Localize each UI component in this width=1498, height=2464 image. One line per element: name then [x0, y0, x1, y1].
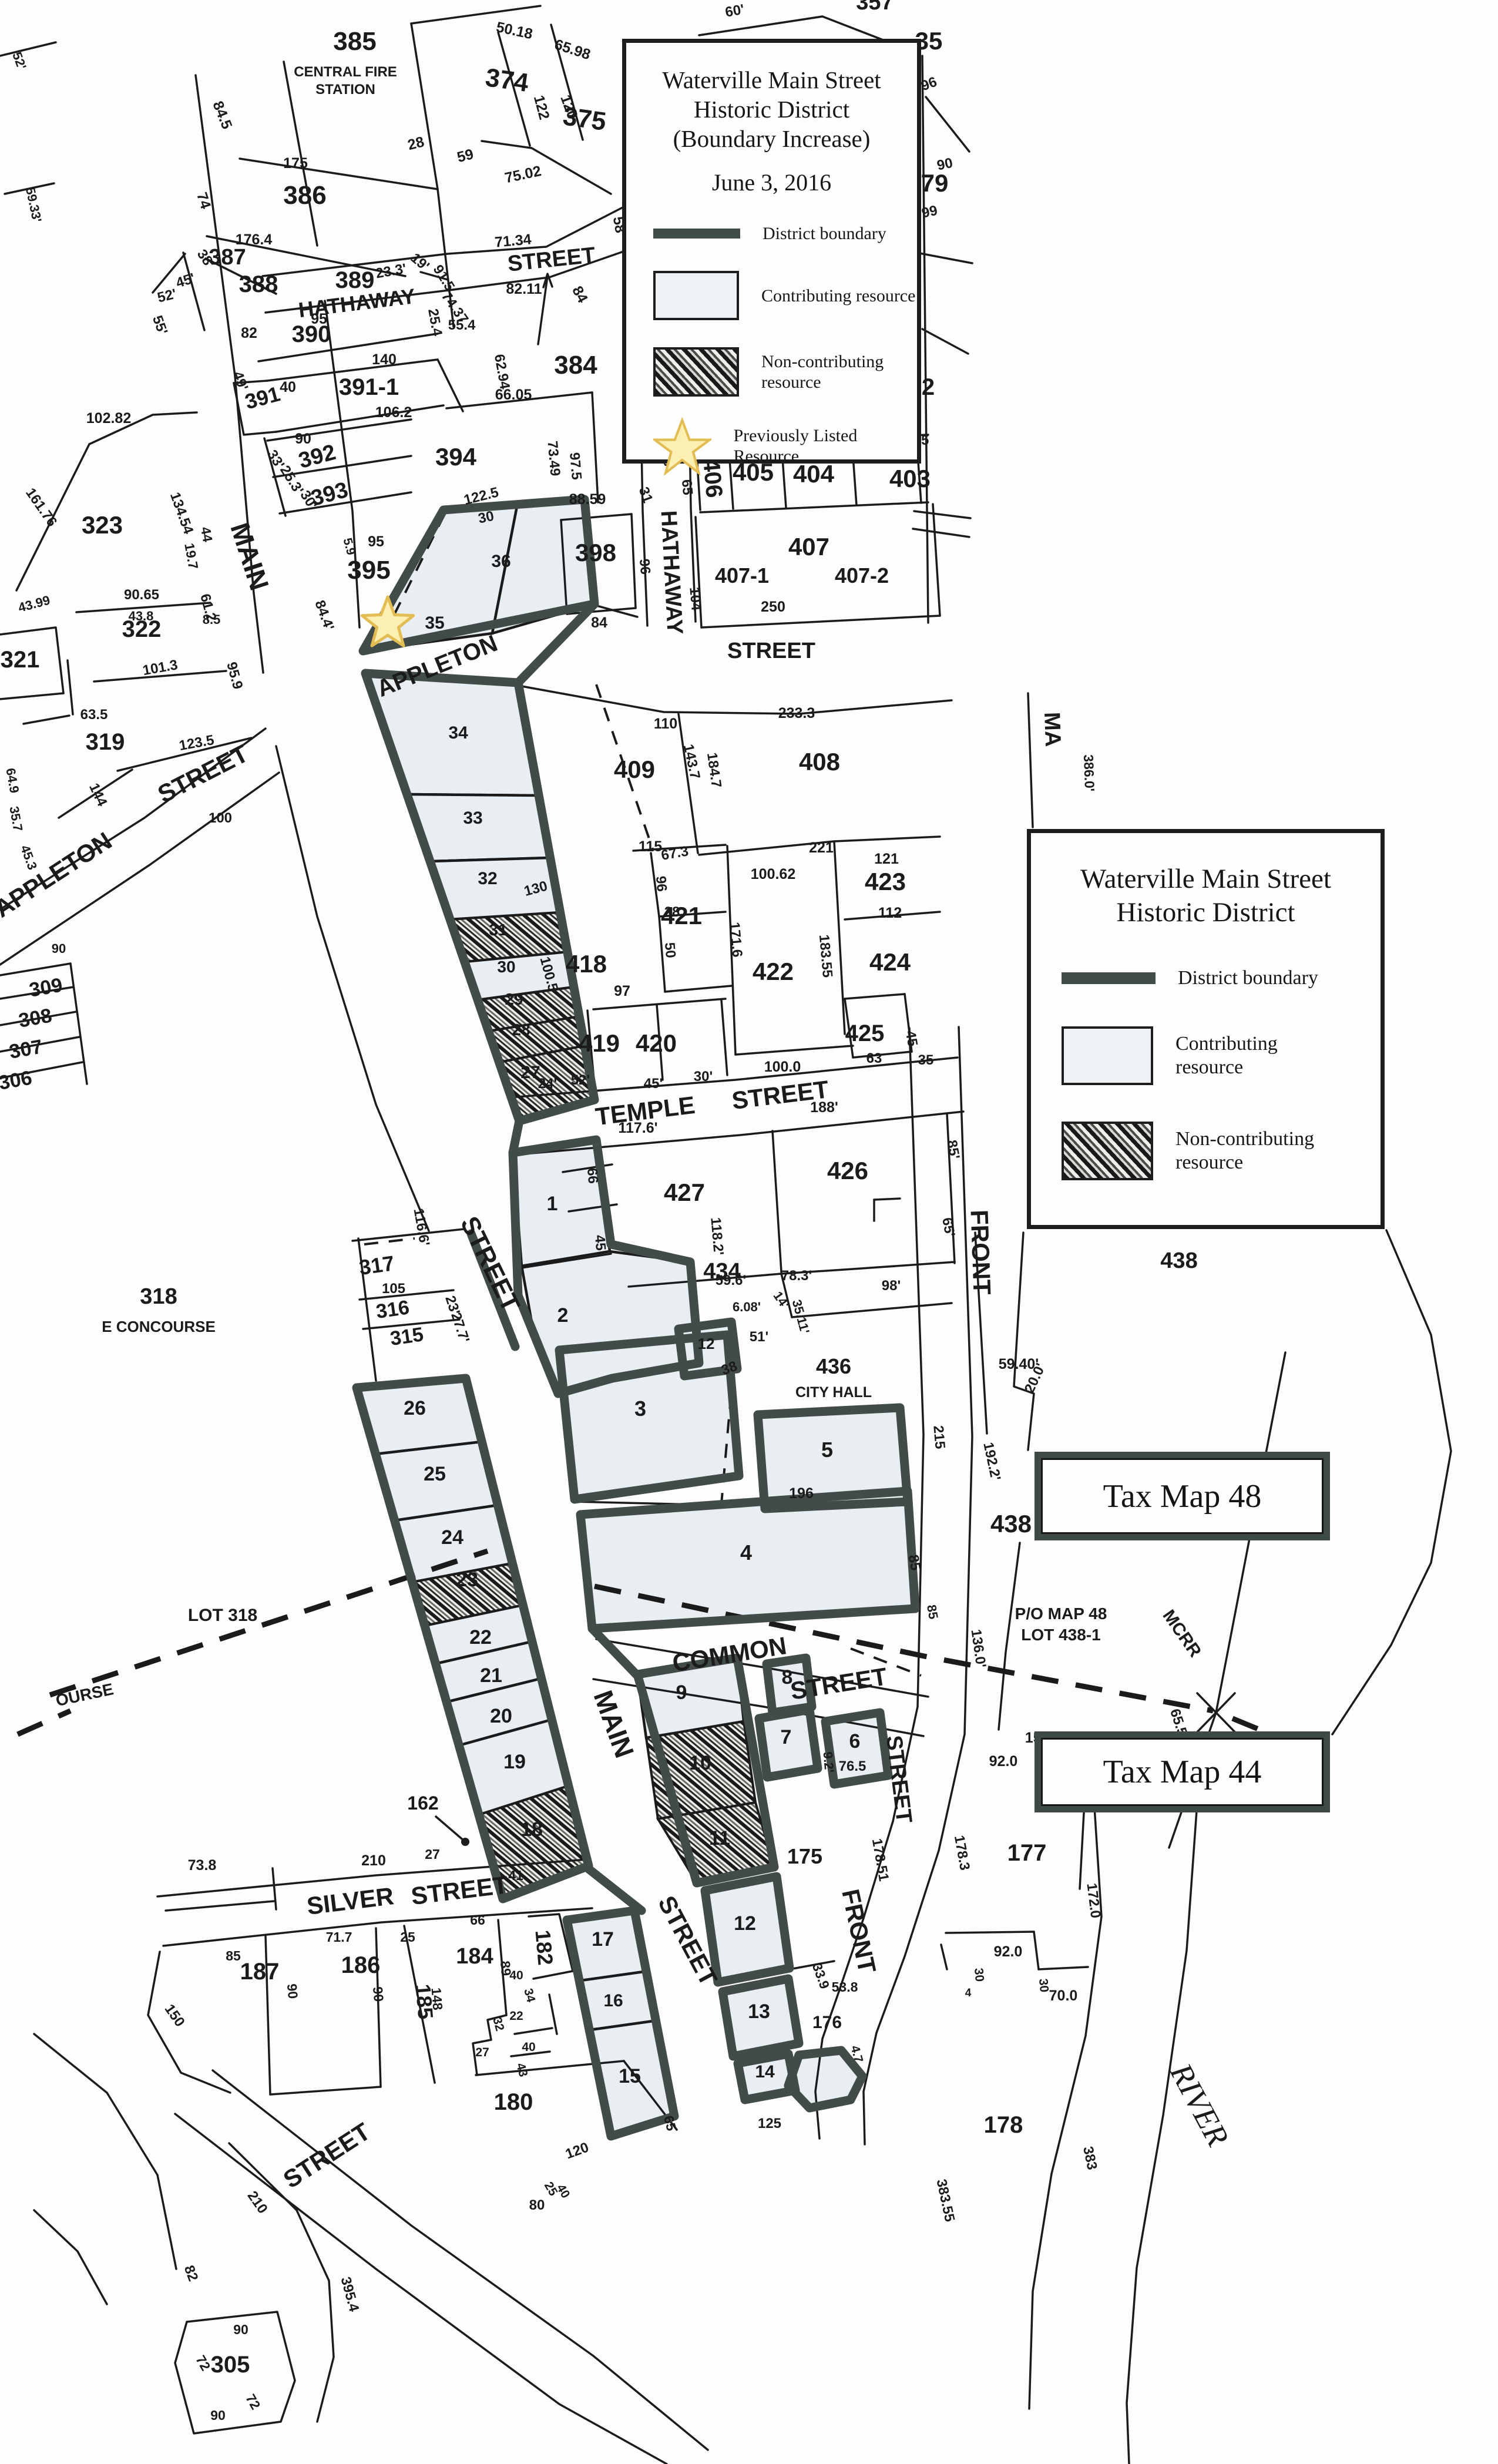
map-label: 178: [984, 2112, 1023, 2138]
map-label: 85': [943, 1139, 962, 1160]
map-label: 184: [456, 1944, 493, 1969]
map-label: 11: [709, 1827, 730, 1849]
map-label: 66: [584, 1167, 601, 1184]
parcel-line: [34, 2034, 176, 2269]
map-label: 85: [905, 1553, 923, 1572]
map-label: 175: [283, 155, 308, 172]
map-label: 316: [375, 1296, 411, 1323]
map-label: 305: [211, 2352, 250, 2378]
map-label: 45: [902, 1029, 921, 1048]
map-label: 187: [240, 1959, 280, 1985]
map-label: 161.76: [22, 485, 60, 530]
map-label: 52': [571, 1072, 590, 1088]
parcel-line: [148, 1952, 230, 2093]
map-label: 22: [509, 2009, 523, 2023]
map-label: 15: [619, 2065, 641, 2087]
map-label: 317: [358, 1251, 396, 1280]
parcel-line: [914, 511, 970, 518]
parcel-line: [522, 686, 952, 714]
map-label: 55.4: [448, 317, 476, 333]
legend-historic-district: Waterville Main Street Historic District…: [1027, 829, 1385, 1229]
contributing-lot: [559, 1335, 739, 1499]
map-label: 19': [408, 250, 432, 274]
parcel-line: [593, 999, 726, 1009]
map-label: 12: [734, 1912, 756, 1935]
map-label: 59.6': [716, 1273, 746, 1288]
map-label: 21: [480, 1664, 502, 1687]
map-label: 192.2': [980, 1441, 1003, 1482]
map-label: 27: [475, 2046, 489, 2059]
map-label: 62.94: [491, 353, 513, 391]
map-label: 33.9: [810, 1961, 833, 1991]
map-label: 82.11: [506, 281, 542, 297]
parcel-line: [913, 529, 969, 537]
map-label: 27: [520, 1063, 540, 1082]
map-label: 196: [789, 1485, 814, 1502]
map-label: 175: [787, 1844, 822, 1868]
legend-item-non-contributing: Non-contributing resource: [1062, 1122, 1381, 1180]
map-label: 80: [529, 2197, 545, 2213]
map-label: 36: [491, 552, 510, 571]
parcel-line: [1028, 693, 1033, 827]
map-label: 215: [930, 1425, 948, 1449]
map-label: 386: [283, 181, 326, 210]
map-label: 25: [424, 1463, 446, 1485]
parcel-line: [352, 1229, 464, 1241]
map-label: 395: [347, 556, 390, 585]
map-label: 82: [181, 2263, 201, 2283]
map-label: 96: [636, 558, 653, 575]
map-label: 63: [866, 1050, 882, 1066]
map-label: 423: [865, 868, 906, 895]
legend-title: Waterville Main Street Historic District…: [626, 65, 917, 153]
map-label: CITY HALL: [795, 1384, 872, 1401]
parcel-line: [482, 141, 611, 194]
map-label: 51': [750, 1329, 768, 1345]
map-label: 17: [592, 1928, 614, 1951]
parcel-line: [701, 616, 940, 627]
map-label: 398: [575, 539, 616, 566]
map-label: 90: [210, 2408, 226, 2423]
map-label: 150: [162, 2002, 188, 2030]
map-label: 63.5: [80, 707, 108, 723]
map-label: STREET: [881, 1734, 916, 1825]
map-label: 19.7: [182, 542, 201, 570]
parcel-line: [515, 2028, 552, 2034]
legend-item-non-contributing: Non-contributing resource: [653, 347, 917, 397]
district-boundary: [586, 1867, 641, 1911]
map-label: 391-1: [339, 374, 399, 400]
parcel-line: [0, 42, 56, 56]
map-label: 12: [698, 1335, 715, 1352]
map-label: 422: [753, 958, 794, 985]
map-label: 31: [489, 921, 507, 939]
river-label: RIVER: [1163, 2057, 1236, 2151]
map-label: 35: [425, 613, 444, 633]
map-label: STREET: [409, 1871, 510, 1910]
map-label: 178.3: [951, 1834, 973, 1872]
map-label: 117.6': [618, 1120, 657, 1136]
map-label: 23.3': [375, 261, 408, 282]
parcel-line: [922, 56, 928, 623]
map-label: 374: [483, 63, 530, 98]
parcel-line: [436, 1817, 465, 1842]
map-label: 9.2': [820, 1751, 837, 1773]
parcel-line: [34, 2210, 107, 2304]
map-label: 85: [924, 1603, 941, 1620]
map-label: 78.3': [781, 1268, 812, 1284]
map-label: 184.7: [704, 751, 724, 788]
map-label: 409: [614, 756, 655, 783]
map-label: 52': [156, 286, 178, 306]
map-label: 318: [140, 1284, 177, 1309]
parcel-line: [696, 517, 701, 627]
parcel-line: [700, 502, 928, 512]
map-label: 407-2: [835, 563, 889, 588]
map-label: 24: [441, 1526, 463, 1549]
map-label: 110: [654, 716, 677, 732]
contributing-swatch: [653, 271, 739, 320]
tax-map-48-box: Tax Map 48: [1035, 1452, 1330, 1540]
map-label: 50: [661, 942, 679, 959]
map-label: 19: [503, 1751, 526, 1773]
map-label: 148: [428, 1987, 445, 2011]
map-label: 418: [566, 950, 607, 978]
map-label: 134.54: [167, 490, 197, 536]
map-label: 438: [990, 1510, 1032, 1538]
map-label: HATHAWAY: [656, 510, 687, 635]
map-label: 23: [456, 1569, 478, 1591]
map-label: 65': [939, 1216, 958, 1238]
map-label: 29: [505, 990, 523, 1008]
parcel-line: [411, 24, 438, 189]
map-label: 30': [694, 1069, 713, 1085]
map-label: 25: [400, 1929, 415, 1945]
legend-boundary-increase: Waterville Main Street Historic District…: [622, 39, 921, 464]
map-label: STATION: [315, 82, 375, 98]
map-label: 28: [512, 1020, 530, 1039]
map-label: 90: [936, 155, 955, 174]
map-label: 44: [198, 526, 216, 543]
map-label: 97: [614, 983, 630, 999]
map-label: 233.3: [778, 705, 815, 721]
tax-map-48-label: Tax Map 48: [1041, 1458, 1324, 1534]
parcel-line: [926, 97, 969, 152]
map-label: 105: [382, 1281, 405, 1297]
parcel-line: [270, 2087, 381, 2094]
map-label: 95: [368, 533, 384, 550]
map-label: LOT 438-1: [1021, 1626, 1100, 1644]
map-label: 100.62: [751, 866, 795, 882]
parcel-line: [721, 1000, 727, 1075]
map-label: 22: [469, 1626, 492, 1649]
map-label: 5: [821, 1438, 833, 1462]
map-label: 75.02: [503, 163, 543, 186]
map-label: 33: [463, 808, 482, 828]
parcel-line: [1014, 1233, 1034, 1450]
map-label: 384: [554, 351, 597, 380]
map-label: MAIN: [588, 1686, 640, 1761]
map-label: 59.33': [23, 186, 45, 223]
map-label: 394: [435, 443, 477, 471]
map-label: 426: [827, 1157, 868, 1184]
map-label: 34: [521, 1987, 538, 2004]
non-contributing-swatch: [1062, 1122, 1153, 1180]
parcel-line: [1127, 1786, 1198, 2464]
map-label: 73.49: [544, 440, 563, 476]
tax-map-44-box: Tax Map 44: [1035, 1731, 1330, 1812]
map-label: 221: [809, 840, 834, 856]
map-label: 90: [233, 2322, 248, 2337]
parcel-line: [946, 1932, 1034, 1933]
map-label: 182: [530, 1929, 557, 1966]
parcel-line: [70, 964, 87, 1084]
parcel-line: [533, 1971, 573, 1979]
parcel-line: [922, 329, 968, 354]
map-label: 250: [761, 599, 785, 615]
parcel-line: [229, 2143, 334, 2422]
map-label: MCRR: [1158, 1606, 1205, 1661]
map-label: 188': [810, 1099, 838, 1116]
map-label: 140: [372, 351, 397, 368]
map-label: MA: [1039, 711, 1065, 747]
map-label: 84.5: [209, 99, 235, 132]
map-label: 407-1: [715, 563, 769, 588]
map-label: 35: [918, 1052, 934, 1068]
map-label: 27: [425, 1847, 440, 1862]
map-label: 123.5: [178, 732, 216, 754]
map-label: 99: [921, 203, 939, 221]
map-label: 112: [878, 905, 902, 921]
map-label: 76.5: [839, 1758, 866, 1774]
map-label: 92.0: [994, 1943, 1023, 1960]
parcel-line: [276, 746, 429, 1231]
map-label: 4: [965, 1987, 972, 1999]
map-label: 90: [284, 1983, 301, 1999]
map-label: 383.55: [933, 2178, 958, 2223]
map-label: 309: [28, 974, 64, 1002]
map-label: 60': [724, 2, 745, 21]
parcel-line: [941, 1945, 947, 1969]
map-label: 210: [244, 2188, 271, 2217]
map-label: 84: [591, 615, 607, 631]
map-label: 210: [361, 1852, 386, 1869]
map-label: 2: [922, 374, 935, 400]
map-label: 5.9: [340, 536, 358, 556]
map-label: 95: [311, 311, 327, 327]
parcel-line: [258, 334, 438, 361]
map-label: 65: [679, 479, 696, 496]
map-label: 116.6': [410, 1207, 432, 1247]
map-label: 100.0: [764, 1059, 801, 1075]
map-label: 32: [478, 869, 497, 888]
map-label: 3: [634, 1397, 646, 1421]
map-label: 28: [406, 133, 426, 153]
non-contributing-swatch: [653, 347, 739, 397]
map-label: 40: [280, 379, 296, 395]
map-label: 2: [557, 1304, 569, 1327]
map-label: 27.7': [448, 1311, 472, 1345]
map-label: 183.55: [816, 934, 835, 978]
contributing-swatch: [1062, 1026, 1153, 1085]
map-label: 70.0: [1049, 1988, 1078, 2004]
map-label: 64.9: [3, 767, 22, 794]
map-label: 4: [740, 1540, 752, 1565]
map-label: 9: [676, 1681, 687, 1704]
map-label: 122: [530, 93, 553, 122]
map-label: 90: [370, 1986, 387, 2002]
map-label: 26: [404, 1397, 426, 1419]
map-label: 176.4: [236, 231, 273, 248]
leader-dot: [461, 1838, 469, 1846]
map-label: FRONT: [837, 1886, 881, 1976]
map-label: 419: [579, 1029, 620, 1057]
parcel-line: [163, 1908, 592, 1946]
map-label: 41: [508, 1868, 523, 1883]
map-label: 24': [538, 1076, 557, 1092]
map-label: 30: [477, 508, 496, 527]
map-label: 71.7: [326, 1929, 352, 1945]
map-label: 104: [686, 586, 704, 612]
star-icon: [653, 417, 711, 475]
map-label: 98': [882, 1278, 901, 1294]
map-label: 180: [494, 2089, 533, 2115]
parcel-line: [0, 693, 63, 699]
map-label: 424: [869, 948, 911, 976]
parcel-line: [679, 714, 698, 853]
map-label: 30: [497, 958, 515, 976]
parcel-line: [23, 716, 69, 724]
map-label: 308: [17, 1005, 53, 1032]
map-label: 97.5: [566, 452, 585, 481]
map-label: 407: [788, 533, 829, 560]
parcel-line: [853, 1052, 912, 1058]
map-label: 436: [816, 1354, 851, 1378]
parcel-line: [438, 360, 463, 411]
district-boundary-swatch: [1062, 972, 1156, 984]
map-label: 121: [874, 851, 899, 867]
map-label: 178.51: [869, 1837, 892, 1882]
map-label: 85: [226, 1948, 241, 1963]
map-label: 59: [455, 146, 475, 166]
map-label: 357: [856, 0, 893, 15]
map-label: 427: [664, 1179, 705, 1206]
map-label: 1: [547, 1193, 558, 1215]
dashed-boundary-line: [18, 1711, 70, 1734]
map-label: 18: [520, 1818, 543, 1841]
map-label: 55': [149, 314, 170, 337]
map-label: 307: [8, 1036, 44, 1063]
map-label: 71.34: [494, 231, 532, 250]
legend-item-contributing: Contributing resource: [1062, 1026, 1381, 1085]
map-label: 90.65: [124, 587, 159, 603]
map-label: 118.2': [707, 1217, 727, 1256]
legend-title: Waterville Main Street Historic District: [1031, 862, 1381, 930]
parcel-line: [792, 1303, 952, 1317]
map-label: 35.7: [6, 805, 25, 832]
map-label: FRONT: [965, 1209, 996, 1295]
map-label: 438: [1160, 1248, 1197, 1273]
map-label: 171.6: [726, 921, 745, 958]
map-label: 102.82: [86, 410, 131, 427]
map-label: 385: [333, 27, 376, 56]
map-label: 408: [799, 748, 840, 776]
map-label: 177: [1007, 1840, 1047, 1866]
map-label: 323: [82, 511, 123, 539]
parcel-line: [933, 504, 940, 616]
map-label: 66.05: [495, 387, 532, 403]
map-label: 388: [239, 271, 278, 297]
map-label: 144: [86, 781, 110, 809]
map-label: 32: [490, 2016, 506, 2033]
parcel-line: [853, 1262, 955, 1269]
district-boundary-swatch: [653, 229, 740, 239]
map-label: E CONCOURSE: [102, 1318, 216, 1335]
map-label: 40: [509, 1969, 523, 1982]
parcel-line: [592, 392, 598, 502]
map-label: 120: [563, 2139, 591, 2162]
map-label: 45': [644, 1076, 663, 1092]
map-label: 420: [636, 1029, 677, 1057]
parcel-line: [772, 1131, 781, 1272]
map-label: 176: [812, 2013, 842, 2032]
map-label: 106.2: [375, 404, 412, 421]
map-label: STREET: [278, 2117, 375, 2194]
map-label: 34: [448, 723, 468, 743]
map-label: 88.59: [569, 491, 606, 508]
map-label: 43: [513, 2062, 530, 2079]
legend-item-district-boundary: District boundary: [653, 223, 917, 244]
map-label: SILVER: [305, 1882, 395, 1920]
map-label: 65.98: [552, 36, 592, 63]
map-label: LOT 318: [188, 1606, 257, 1625]
map-label: 115: [639, 838, 662, 855]
map-label: 315: [389, 1323, 425, 1350]
map-label: 6: [849, 1730, 861, 1753]
map-label: 20: [490, 1705, 512, 1727]
map-label: 90: [52, 941, 66, 956]
non-contributing-lot: [450, 912, 567, 962]
legend-item-previously-listed: Previously Listed Resource: [653, 417, 917, 475]
map-label: 43.8: [129, 609, 154, 623]
tax-map-44-label: Tax Map 44: [1041, 1738, 1324, 1806]
map-label: 67.3: [660, 843, 690, 864]
parcel-line: [1034, 1932, 1039, 1969]
map-label: STREET: [727, 639, 815, 663]
map-label: 383: [1080, 2145, 1100, 2171]
map-label: 72: [243, 2391, 263, 2412]
map-label: 45: [592, 1234, 609, 1251]
map-label: 143.7: [680, 743, 703, 780]
tax-map-page: 385CENTRAL FIRESTATION374375386387388389…: [0, 0, 1498, 2464]
parcel-line: [845, 994, 905, 999]
map-label: 40: [522, 2040, 535, 2054]
map-label: 73.8: [188, 1857, 217, 1874]
parcel-line: [665, 986, 731, 992]
map-label: 43.99: [16, 593, 52, 615]
parcel-line: [834, 841, 845, 1034]
parcel-line: [68, 660, 73, 714]
map-label: OURSE: [54, 1680, 115, 1710]
parcel-line: [999, 1543, 1020, 1730]
map-label: 90: [295, 431, 311, 447]
parcel-line: [1080, 1813, 1084, 1889]
map-label: 8.5: [203, 612, 221, 627]
parcel-line: [175, 2114, 667, 2464]
parcel-line: [1332, 1230, 1451, 1734]
map-label: 84: [569, 283, 591, 306]
map-label: 136.0': [968, 1629, 989, 1669]
